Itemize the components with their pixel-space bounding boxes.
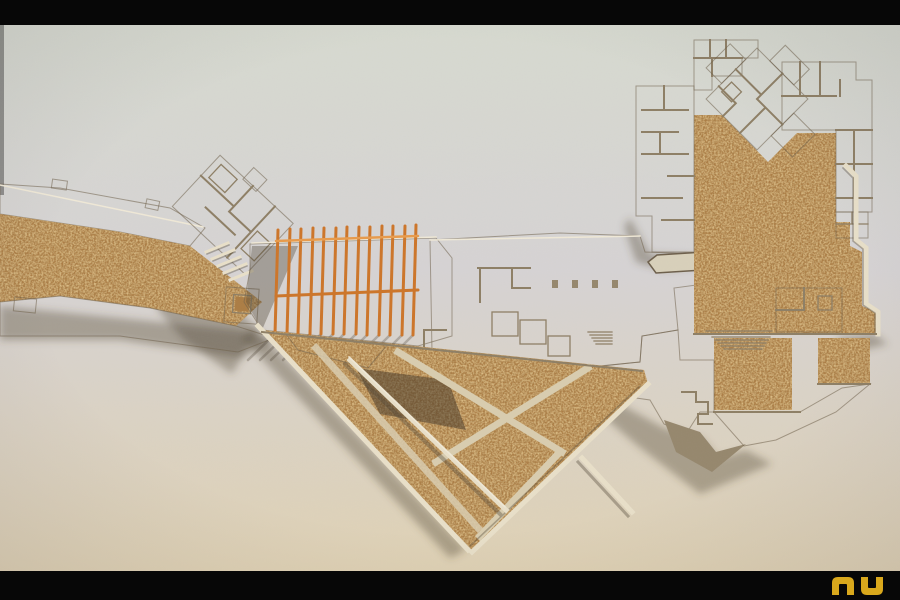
- vignette: [0, 25, 900, 571]
- letterbox-top: [0, 0, 900, 25]
- photo-frame: [0, 0, 900, 600]
- letterbox-bottom: [0, 571, 900, 600]
- photo: [0, 0, 900, 600]
